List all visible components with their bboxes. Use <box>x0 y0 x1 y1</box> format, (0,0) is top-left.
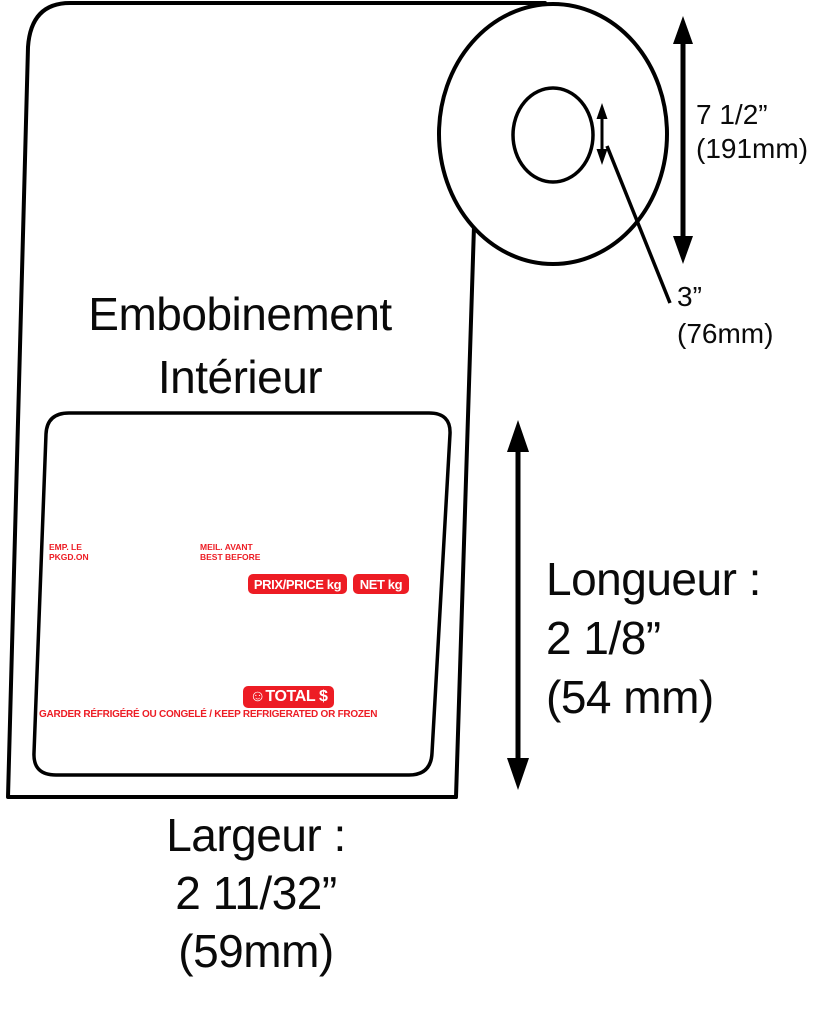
packed-on-line-fr: EMP. LE <box>49 542 89 552</box>
core-diameter-callout: 3” (76mm) <box>677 278 773 352</box>
length-mm: (54 mm) <box>546 668 761 727</box>
title-line-2: Intérieur <box>40 346 440 409</box>
best-before-line-fr: MEIL. AVANT <box>200 542 260 552</box>
diagram-title: Embobinement Intérieur <box>40 283 440 409</box>
label-roll-diagram: Embobinement Intérieur 7 1/2” (191mm) 3”… <box>0 0 818 1024</box>
outer-diameter-callout: 7 1/2” (191mm) <box>696 98 808 166</box>
outer-diameter-mm: (191mm) <box>696 132 808 166</box>
width-label: Largeur : <box>120 806 392 864</box>
label-length-arrow <box>507 420 529 790</box>
width-mm: (59mm) <box>120 922 392 980</box>
outer-diameter-arrow <box>673 16 693 264</box>
core-diameter-mm: (76mm) <box>677 315 773 352</box>
price-per-kg-badge: PRIX/PRICE kg <box>248 574 347 594</box>
packed-on-field: EMP. LE PKGD.ON <box>49 542 89 562</box>
label-width-callout: Largeur : 2 11/32” (59mm) <box>120 806 392 980</box>
core-diameter-inches: 3” <box>677 278 773 315</box>
best-before-field: MEIL. AVANT BEST BEFORE <box>200 542 260 562</box>
net-weight-badge: NET kg <box>353 574 409 594</box>
width-inches: 2 11/32” <box>120 864 392 922</box>
outer-diameter-inches: 7 1/2” <box>696 98 808 132</box>
packed-on-line-en: PKGD.ON <box>49 552 89 562</box>
roll-core-circle <box>513 88 593 182</box>
length-label: Longueur : <box>546 550 761 609</box>
total-price-badge: ☺TOTAL $ <box>243 686 334 708</box>
storage-notice: GARDER RÉFRIGÉRÉ OU CONGELÉ / KEEP REFRI… <box>39 709 377 720</box>
label-length-callout: Longueur : 2 1/8” (54 mm) <box>546 550 761 727</box>
best-before-line-en: BEST BEFORE <box>200 552 260 562</box>
length-inches: 2 1/8” <box>546 609 761 668</box>
title-line-1: Embobinement <box>40 283 440 346</box>
label-outline <box>34 413 450 775</box>
